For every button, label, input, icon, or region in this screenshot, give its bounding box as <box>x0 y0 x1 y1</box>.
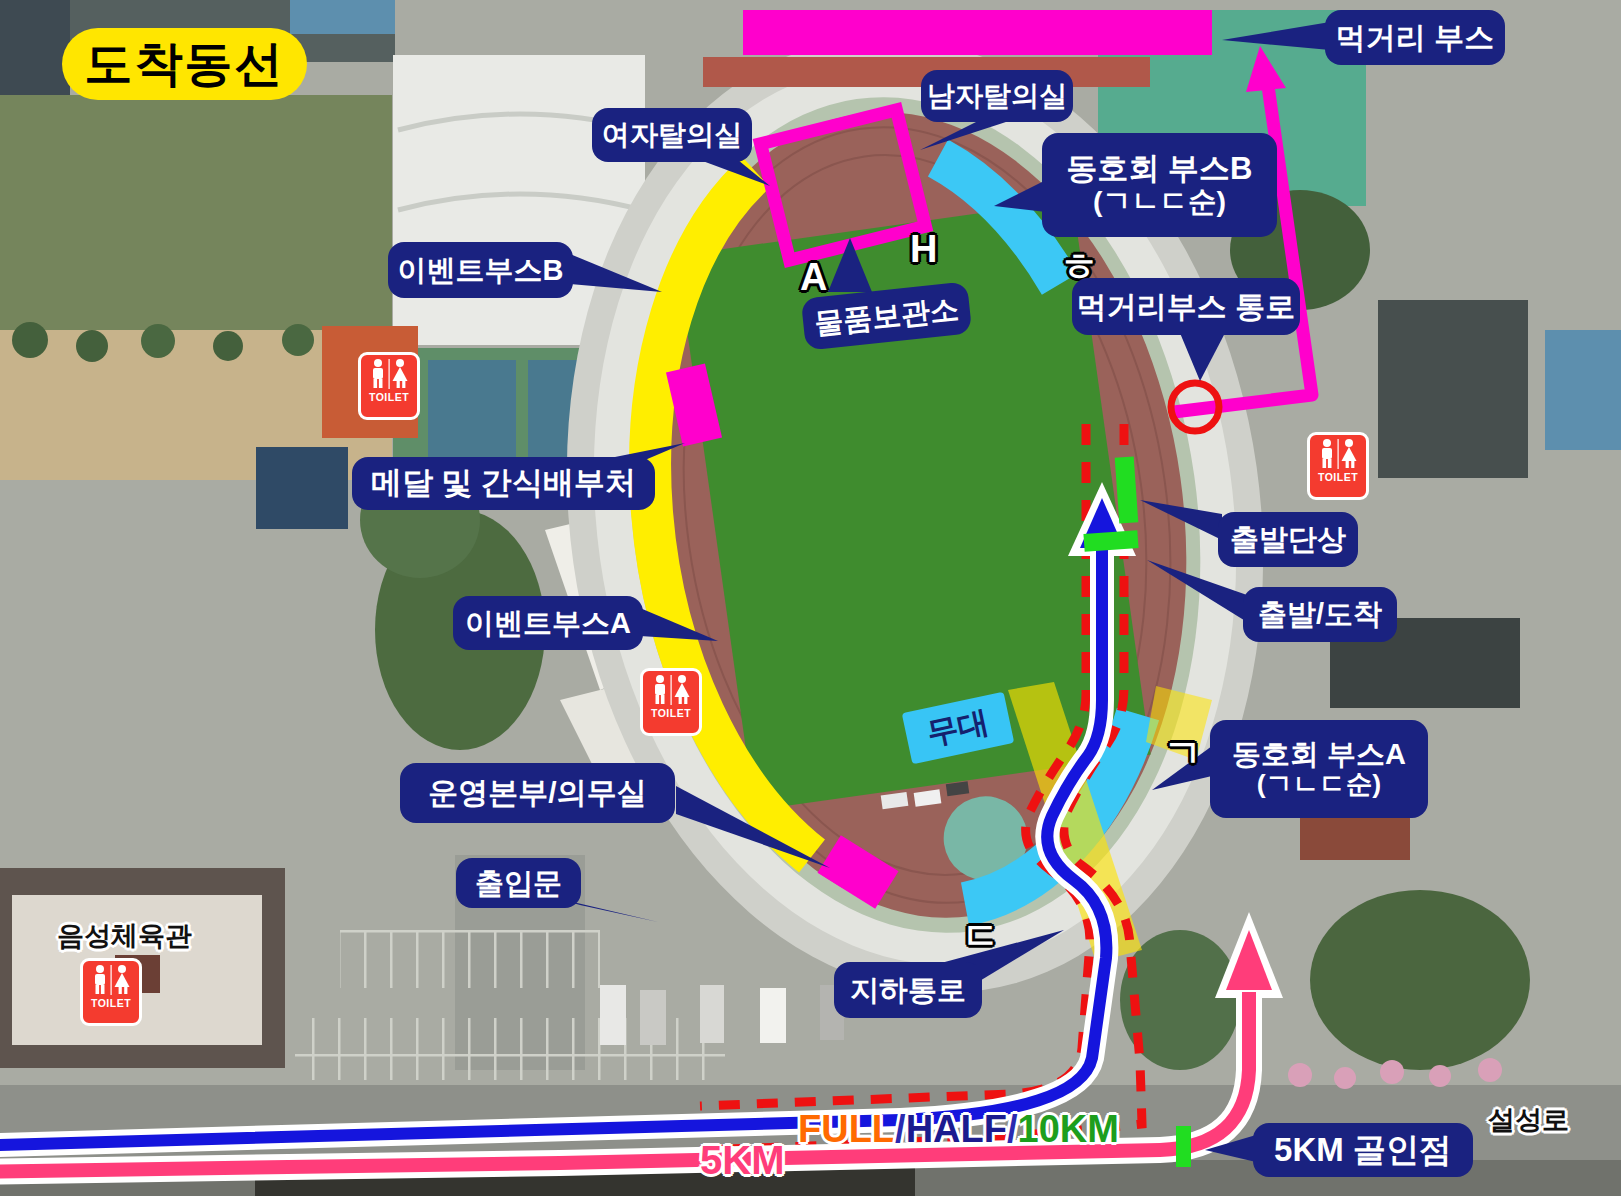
callout-food-passage: 먹거리부스 통로 <box>1072 278 1300 335</box>
callout-start-finish: 출발/도착 <box>1243 587 1397 642</box>
toilet-sign-east: TOILET <box>1307 432 1369 500</box>
callout-medal-snack-label: 메달 및 간식배부처 <box>371 466 636 501</box>
route-label-10km: 10KM <box>1018 1108 1119 1150</box>
callout-club-booth-a-line2: (ㄱㄴㄷ순) <box>1257 770 1381 800</box>
food-booth-zone-bar <box>743 10 1212 55</box>
callout-mens-changing: 남자탈의실 <box>921 70 1073 122</box>
callout-finish-5km-label: 5KM 골인점 <box>1274 1132 1452 1169</box>
track-letter-h: H <box>910 228 937 271</box>
toilet-label: TOILET <box>369 391 409 403</box>
callout-gate-label: 출입문 <box>475 867 562 899</box>
callout-gate: 출입문 <box>456 858 581 908</box>
toilet-sign-tennis: TOILET <box>358 352 420 420</box>
route-label-sep1: / <box>895 1108 906 1150</box>
callout-club-booth-b: 동호회 부스B (ㄱㄴㄷ순) <box>1042 133 1277 237</box>
callout-womens-changing-label: 여자탈의실 <box>602 119 742 150</box>
toilet-label: TOILET <box>1318 471 1358 483</box>
route-label-full: FULL <box>798 1108 895 1150</box>
toilet-label: TOILET <box>91 997 131 1009</box>
callout-underpass: 지하통로 <box>834 962 982 1018</box>
route-label-half: HALF <box>906 1108 1007 1150</box>
track-letter-a: A <box>800 256 827 299</box>
restroom-icon <box>89 964 133 996</box>
toilet-sign-west: TOILET <box>640 668 702 736</box>
track-letter-digeut: ㄷ <box>962 911 1000 962</box>
callout-hq-medical-label: 운영본부/의무실 <box>428 776 646 810</box>
callout-club-booth-b-line2: (ㄱㄴㄷ순) <box>1093 186 1226 218</box>
finish-5km-marker <box>1176 1126 1191 1167</box>
route-label-5km: 5KM <box>700 1138 784 1183</box>
road-label: 설성로 <box>1488 1102 1569 1138</box>
callout-mens-changing-label: 남자탈의실 <box>927 80 1067 111</box>
stage-label-text: 무대 <box>923 701 992 755</box>
restroom-icon <box>649 674 693 706</box>
callout-event-booth-b: 이벤트부스B <box>388 242 573 298</box>
map-title: 도착동선 <box>62 28 307 100</box>
callout-club-booth-b-line1: 동호회 부스B <box>1067 152 1253 187</box>
callout-club-booth-a: 동호회 부스A (ㄱㄴㄷ순) <box>1210 720 1428 818</box>
restroom-icon <box>367 358 411 390</box>
callout-event-booth-a: 이벤트부스A <box>453 596 643 650</box>
gym-label: 음성체육관 <box>57 918 192 954</box>
callout-food-booth: 먹거리 부스 <box>1325 10 1505 65</box>
callout-medal-snack: 메달 및 간식배부처 <box>352 457 655 510</box>
callout-event-booth-a-label: 이벤트부스A <box>465 607 631 639</box>
callout-event-booth-b-label: 이벤트부스B <box>398 254 564 286</box>
start-finish-line-marker <box>1083 530 1138 552</box>
track-letter-giyeok: ㄱ <box>1164 728 1202 779</box>
callout-finish-5km: 5KM 골인점 <box>1253 1123 1473 1177</box>
callout-start-podium: 출발단상 <box>1218 512 1358 567</box>
callout-start-podium-label: 출발단상 <box>1230 523 1346 555</box>
callout-food-passage-label: 먹거리부스 통로 <box>1077 290 1295 324</box>
callout-underpass-label: 지하통로 <box>850 974 966 1006</box>
callout-hq-medical: 운영본부/의무실 <box>400 763 675 823</box>
callout-food-booth-label: 먹거리 부스 <box>1336 21 1494 55</box>
restroom-icon <box>1316 438 1360 470</box>
callout-womens-changing: 여자탈의실 <box>592 108 752 162</box>
callout-club-booth-a-line1: 동호회 부스A <box>1232 738 1406 770</box>
route-label-sep2: / <box>1007 1108 1018 1150</box>
venue-map: 도착동선 먹거리 부스 남자탈의실 여자탈의실 동호회 부스B (ㄱㄴㄷ순) 이… <box>0 0 1621 1196</box>
callout-storage-label: 물품보관소 <box>813 292 961 339</box>
toilet-label: TOILET <box>651 707 691 719</box>
route-label-full-half-10km: FULL/HALF/10KM <box>798 1108 1119 1151</box>
callout-start-finish-label: 출발/도착 <box>1258 598 1382 630</box>
toilet-sign-gym: TOILET <box>80 958 142 1026</box>
